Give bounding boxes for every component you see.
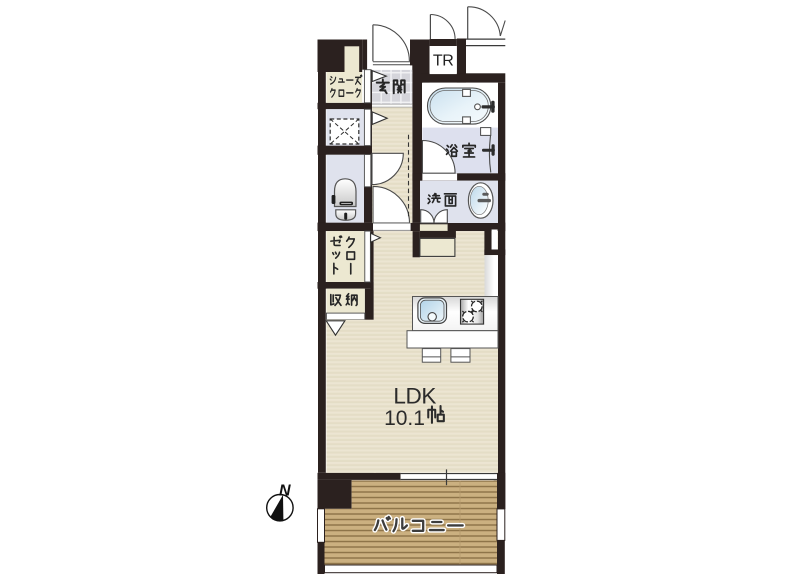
- svg-text:10.1: 10.1: [384, 407, 425, 430]
- svg-text:TR: TR: [433, 53, 454, 70]
- svg-text:LDK: LDK: [393, 384, 436, 409]
- svg-text:N: N: [279, 483, 291, 500]
